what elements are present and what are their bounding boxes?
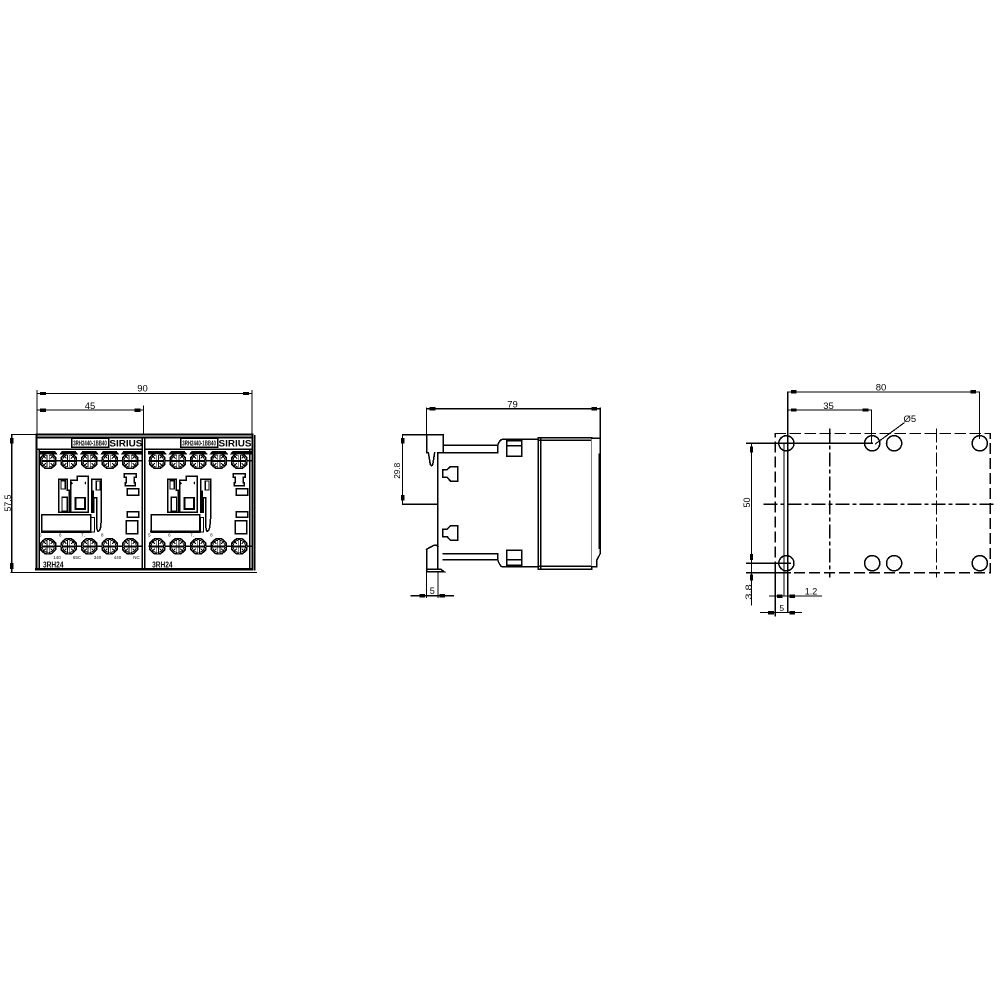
svg-text:5: 5 [430,586,435,596]
svg-text:5: 5 [779,603,784,613]
svg-text:80: 80 [876,383,887,394]
svg-text:50: 50 [742,497,752,507]
svg-text:340: 340 [94,555,102,560]
svg-text:79: 79 [507,400,518,411]
svg-text:Ø5: Ø5 [904,414,917,425]
svg-text:90: 90 [137,384,148,395]
svg-text:140: 140 [53,555,61,560]
svg-text:65C: 65C [73,555,82,560]
svg-text:29.8: 29.8 [392,463,402,479]
svg-text:NC: NC [133,555,140,560]
svg-text:35: 35 [823,401,834,412]
svg-text:57.5: 57.5 [3,495,13,512]
svg-text:440: 440 [114,555,122,560]
svg-text:1.2: 1.2 [805,587,818,597]
svg-text:45: 45 [85,401,96,412]
svg-text:3.8: 3.8 [743,584,753,600]
